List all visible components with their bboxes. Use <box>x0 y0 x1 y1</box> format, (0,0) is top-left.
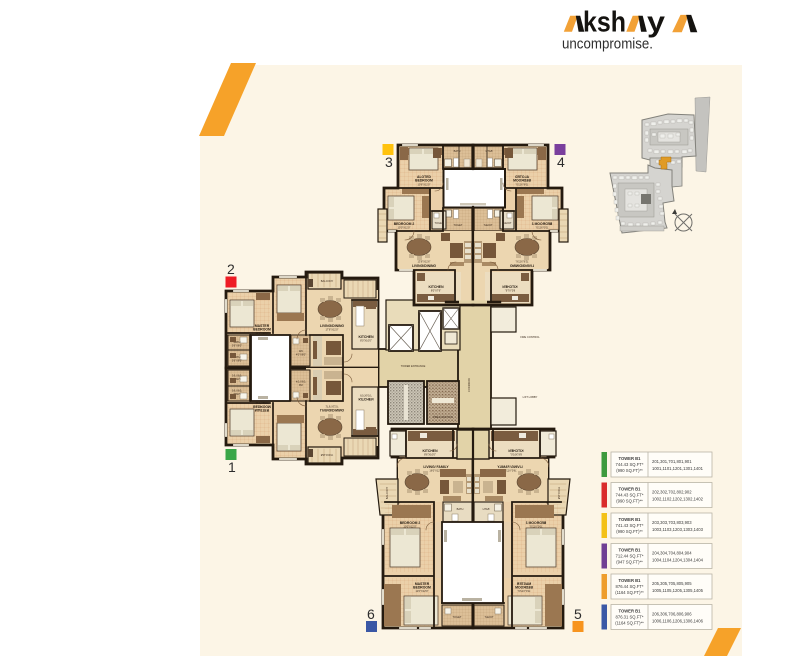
svg-text:6: 6 <box>367 606 375 622</box>
svg-text:BEDROOM 2: BEDROOM 2 <box>394 222 415 226</box>
svg-text:LIFT LOBBY: LIFT LOBBY <box>523 395 538 399</box>
svg-text:876.44 SQ.FT*: 876.44 SQ.FT* <box>616 584 644 589</box>
svg-text:1002,1102,1202,1302,1402: 1002,1102,1202,1302,1402 <box>652 497 704 502</box>
svg-text:1003,1103,1203,1303,1403: 1003,1103,1203,1303,1403 <box>652 527 704 532</box>
svg-text:8'0"X10'0": 8'0"X10'0" <box>360 339 372 343</box>
svg-text:5'6"X8'0": 5'6"X8'0" <box>232 343 242 347</box>
svg-text:LIVING/DINING: LIVING/DINING <box>412 264 436 268</box>
svg-text:TOWER B1: TOWER B1 <box>618 548 641 553</box>
svg-text:CORRIDOR: CORRIDOR <box>467 378 471 392</box>
svg-text:BALCONY: BALCONY <box>385 487 389 500</box>
svg-text:5: 5 <box>574 606 582 622</box>
svg-text:3: 3 <box>385 154 393 170</box>
svg-text:(990 SQ.FT)**: (990 SQ.FT)** <box>616 529 643 534</box>
svg-text:876.31 SQ.FT*: 876.31 SQ.FT* <box>616 615 644 620</box>
svg-text:(947 SQ.FT)**: (947 SQ.FT)** <box>616 560 643 565</box>
svg-text:4'0"X8'0": 4'0"X8'0" <box>296 352 306 356</box>
svg-text:13'6"X11'6": 13'6"X11'6" <box>417 260 430 264</box>
svg-text:1001,1101,1201,1301,1401: 1001,1101,1201,1301,1401 <box>652 466 704 471</box>
svg-text:FIRE CONTROL: FIRE CONTROL <box>520 335 540 339</box>
svg-text:10'0"X12'0": 10'0"X12'0" <box>403 525 416 529</box>
svg-text:202,302,702,802,902: 202,302,702,802,902 <box>652 490 692 495</box>
svg-text:TOILET: TOILET <box>452 615 461 619</box>
svg-text:BEDROOM: BEDROOM <box>413 586 431 590</box>
svg-text:11'0"X12'0": 11'0"X12'0" <box>415 589 428 593</box>
svg-text:205,305,705,805,905: 205,305,705,805,905 <box>652 581 692 586</box>
svg-text:1004,1104,1204,1304,1404: 1004,1104,1204,1304,1404 <box>652 558 704 563</box>
svg-text:17'6"X11'0": 17'6"X11'0" <box>325 328 338 332</box>
svg-text:2: 2 <box>227 261 235 277</box>
svg-text:BATH: BATH <box>454 149 461 153</box>
svg-text:(990 SQ.FT)**: (990 SQ.FT)** <box>616 499 643 504</box>
svg-text:BALCONY: BALCONY <box>321 279 334 283</box>
svg-text:LIVING/DINING: LIVING/DINING <box>320 324 344 328</box>
svg-text:TOWER B1: TOWER B1 <box>618 609 641 614</box>
svg-text:BATH: BATH <box>457 507 464 511</box>
svg-text:1: 1 <box>228 459 236 475</box>
svg-text:TOWER B1: TOWER B1 <box>618 487 641 492</box>
svg-text:(990 SQ.FT)**: (990 SQ.FT)** <box>616 468 643 473</box>
svg-text:1005,1105,1205,1305,1405: 1005,1105,1205,1305,1405 <box>652 588 704 593</box>
svg-text:10'6"X11'0": 10'6"X11'0" <box>417 182 430 186</box>
svg-text:BEDROOM 2: BEDROOM 2 <box>400 521 421 525</box>
svg-text:(1164 SQ.FT)**: (1164 SQ.FT)** <box>615 621 644 626</box>
svg-text:712.44 SQ.FT*: 712.44 SQ.FT* <box>616 554 644 559</box>
svg-text:BEDROOM: BEDROOM <box>415 179 433 183</box>
svg-text:KITCHEN: KITCHEN <box>422 449 438 453</box>
svg-text:8'6"X10'0": 8'6"X10'0" <box>424 453 436 457</box>
svg-text:KITCHEN: KITCHEN <box>358 335 374 339</box>
svg-text:4: 4 <box>557 154 565 170</box>
svg-text:KITCHEN: KITCHEN <box>428 285 444 289</box>
svg-text:BEDROOM: BEDROOM <box>253 328 271 332</box>
svg-text:744.43 SQ.FT*: 744.43 SQ.FT* <box>616 493 644 498</box>
svg-text:TOILET: TOILET <box>453 223 462 227</box>
svg-text:PRE-FUNCTION: PRE-FUNCTION <box>433 415 453 419</box>
svg-text:y: y <box>647 6 665 38</box>
svg-text:10'0"X11'0": 10'0"X11'0" <box>397 226 410 230</box>
svg-text:ksh: ksh <box>583 6 626 38</box>
svg-text:206,306,706,806,906: 206,306,706,806,906 <box>652 612 692 617</box>
svg-text:TOWER B1: TOWER B1 <box>618 456 641 461</box>
svg-text:5'6"X8'0": 5'6"X8'0" <box>232 358 242 362</box>
svg-text:201,301,701,801,901: 201,301,701,801,901 <box>652 459 692 464</box>
svg-text:8'0"X7'6": 8'0"X7'6" <box>431 289 441 293</box>
svg-text:(1164 SQ.FT)**: (1164 SQ.FT)** <box>615 590 644 595</box>
svg-text:203,303,703,803,903: 203,303,703,803,903 <box>652 520 692 525</box>
svg-text:TOWER B1: TOWER B1 <box>618 578 641 583</box>
svg-text:204,304,704,804,904: 204,304,704,804,904 <box>652 551 692 556</box>
svg-text:1006,1106,1206,1306,1406: 1006,1106,1206,1306,1406 <box>652 619 704 624</box>
svg-text:741.43 SQ.FT*: 741.43 SQ.FT* <box>616 523 644 528</box>
svg-text:TOWER B1: TOWER B1 <box>618 517 641 522</box>
svg-text:TOWER ENTRANCE: TOWER ENTRANCE <box>401 364 426 368</box>
svg-text:WC: WC <box>299 349 303 353</box>
svg-text:744.43 SQ.FT*: 744.43 SQ.FT* <box>616 462 644 467</box>
svg-text:uncompromise.: uncompromise. <box>562 37 653 53</box>
